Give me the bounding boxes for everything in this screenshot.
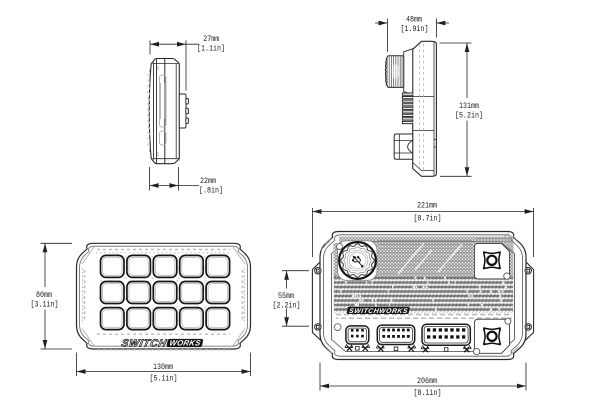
svg-text:130mm: 130mm [153,362,173,372]
svg-text:131mm: 131mm [459,101,479,111]
svg-text:[5.2in]: [5.2in] [455,111,483,121]
svg-text:[5.1in]: [5.1in] [150,374,178,384]
svg-text:WORKS: WORKS [169,339,202,348]
svg-text:SWITCH: SWITCH [120,337,167,349]
svg-text:SWITCHWORKS: SWITCHWORKS [348,308,408,315]
svg-text:[2.2in]: [2.2in] [273,301,301,311]
svg-text:[8.1in]: [8.1in] [414,388,442,398]
svg-text:[1.9in]: [1.9in] [401,24,429,34]
svg-text:48mm: 48mm [406,14,422,24]
svg-text:206mm: 206mm [417,376,437,386]
svg-text:[8.7in]: [8.7in] [414,214,442,224]
svg-text:221mm: 221mm [417,200,437,210]
svg-text:[.8in]: [.8in] [199,185,223,195]
svg-text:55mm: 55mm [278,291,294,301]
svg-text:[3.1in]: [3.1in] [31,300,59,310]
svg-text:80mm: 80mm [36,290,52,300]
svg-text:[1.1in]: [1.1in] [197,43,225,53]
